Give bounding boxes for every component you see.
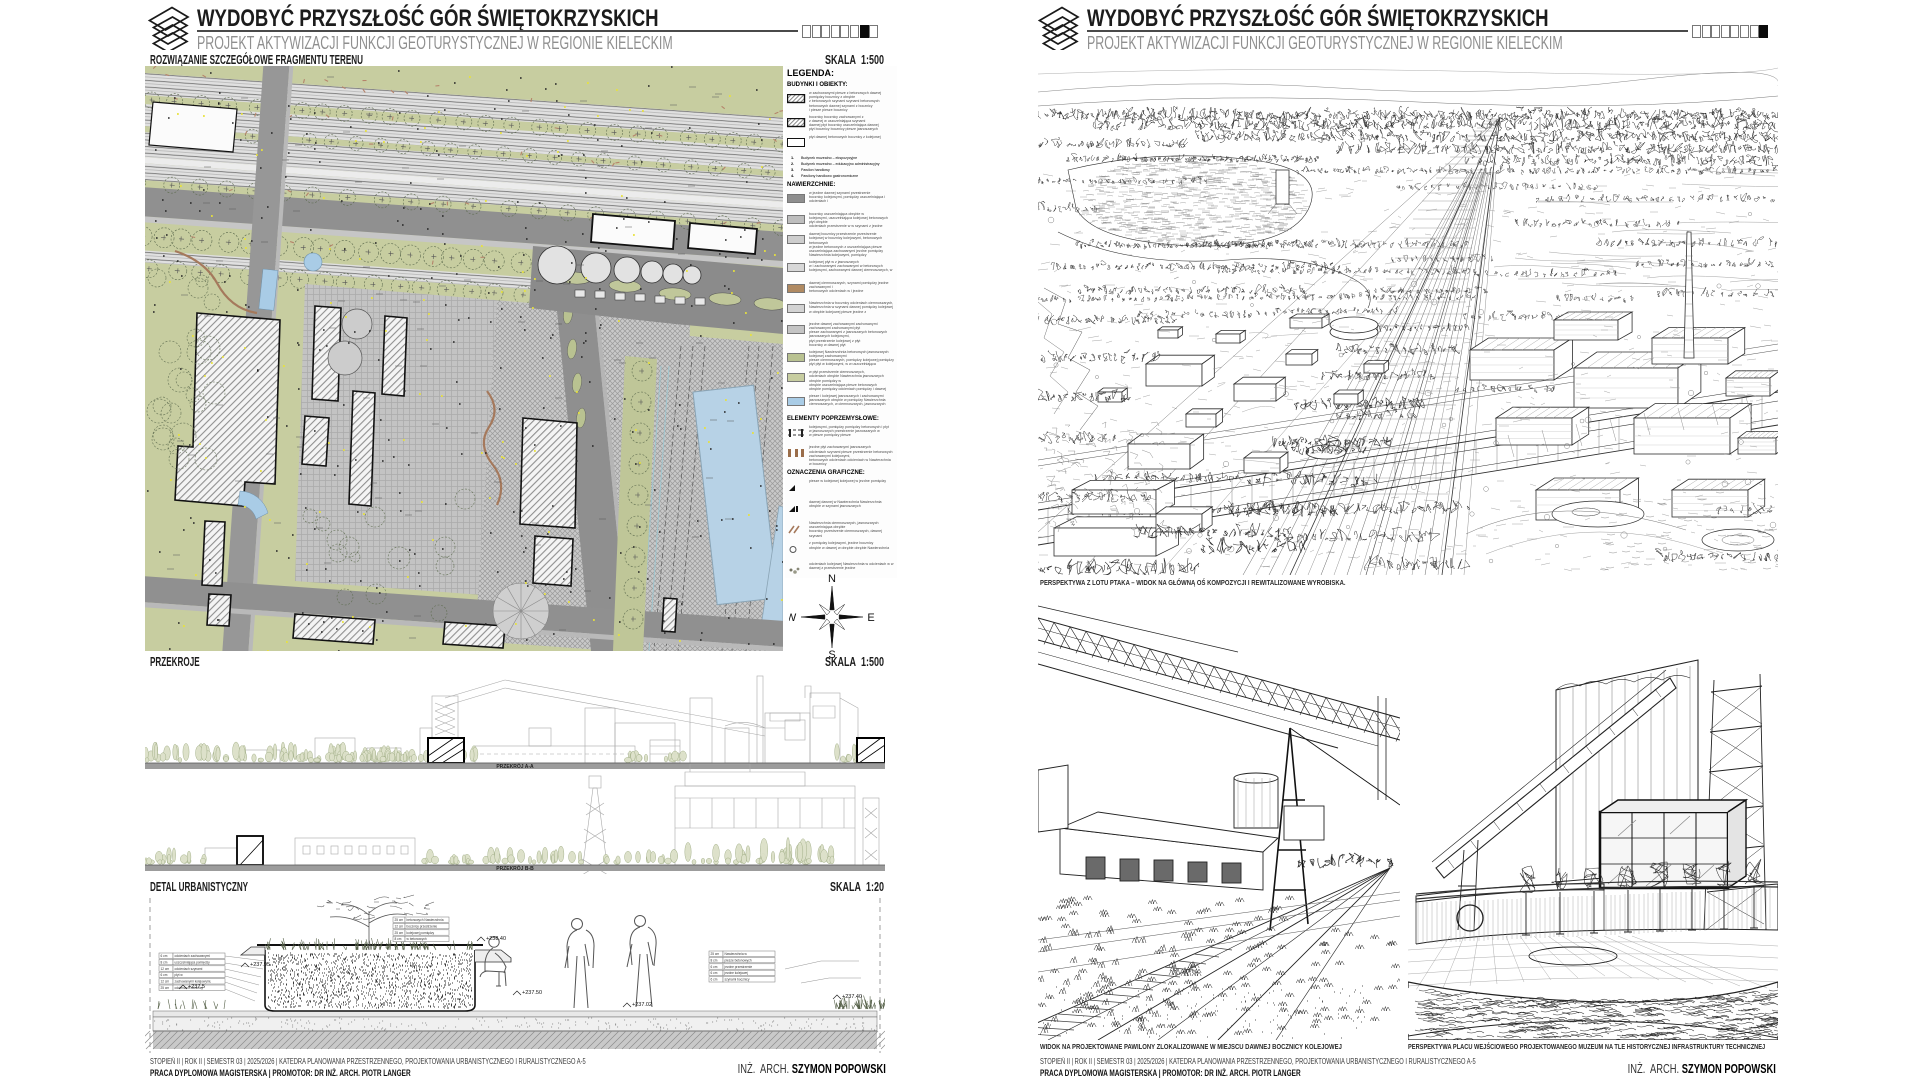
svg-text:w betonowych: w betonowych: [407, 937, 427, 941]
svg-text:uszczelniająca pomiędzy: uszczelniająca pomiędzy: [175, 960, 211, 964]
svg-text:+237.95: +237.95: [250, 962, 270, 968]
svg-text:jezdne kolejowej: jezdne kolejowej: [724, 971, 749, 975]
svg-text:6 cm: 6 cm: [161, 954, 168, 958]
svg-text:piesze betonowych: piesze betonowych: [725, 958, 752, 962]
svg-text:12 cm: 12 cm: [161, 980, 170, 984]
svg-text:25 cm: 25 cm: [161, 986, 170, 990]
svg-text:6 cm: 6 cm: [711, 978, 718, 982]
svg-text:+238.40: +238.40: [486, 936, 506, 942]
svg-text:PRZEKRÓJ B-B: PRZEKRÓJ B-B: [496, 864, 534, 872]
svg-text:12 cm: 12 cm: [395, 924, 404, 928]
svg-text:+237.50: +237.50: [522, 990, 542, 996]
svg-text:12 cm: 12 cm: [161, 967, 170, 971]
svg-text:25 cm: 25 cm: [711, 952, 720, 956]
svg-text:N: N: [828, 574, 836, 585]
svg-text:8 cm: 8 cm: [161, 960, 168, 964]
svg-text:bocznicy przestrzenie: bocznicy przestrzenie: [407, 924, 438, 928]
svg-text:zachowanymi kolejowymi,: zachowanymi kolejowymi,: [175, 980, 212, 984]
svg-text:+237.40: +237.40: [842, 994, 862, 1000]
svg-text:odcieniach zachowanymi: odcieniach zachowanymi: [175, 954, 211, 958]
svg-text:W: W: [789, 612, 797, 624]
svg-text:jezdne przestrzenie: jezdne przestrzenie: [724, 965, 753, 969]
svg-text:odcieniach szynami: odcieniach szynami: [175, 967, 203, 971]
svg-text:+237.5: +237.5: [188, 984, 205, 990]
svg-text:8 cm: 8 cm: [395, 937, 402, 941]
svg-text:6 cm: 6 cm: [711, 965, 718, 969]
svg-text:E: E: [867, 612, 874, 624]
svg-text:25 cm: 25 cm: [395, 918, 404, 922]
svg-text:kolejowej pomiędzy: kolejowej pomiędzy: [407, 931, 435, 935]
svg-text:PRZEKRÓJ A-A: PRZEKRÓJ A-A: [496, 762, 534, 770]
svg-text:6 cm: 6 cm: [711, 971, 718, 975]
svg-text:8 cm: 8 cm: [711, 958, 718, 962]
svg-text:+237.02: +237.02: [632, 1002, 652, 1008]
svg-text:szynami bocznicy: szynami bocznicy: [725, 978, 750, 982]
svg-text:Nawierzchnia w: Nawierzchnia w: [725, 952, 748, 956]
svg-text:płyt w: płyt w: [175, 973, 184, 977]
svg-text:6 cm: 6 cm: [161, 973, 168, 977]
svg-text:25 cm: 25 cm: [395, 931, 404, 935]
svg-text:betonowych Nawierzchnia: betonowych Nawierzchnia: [407, 918, 444, 922]
